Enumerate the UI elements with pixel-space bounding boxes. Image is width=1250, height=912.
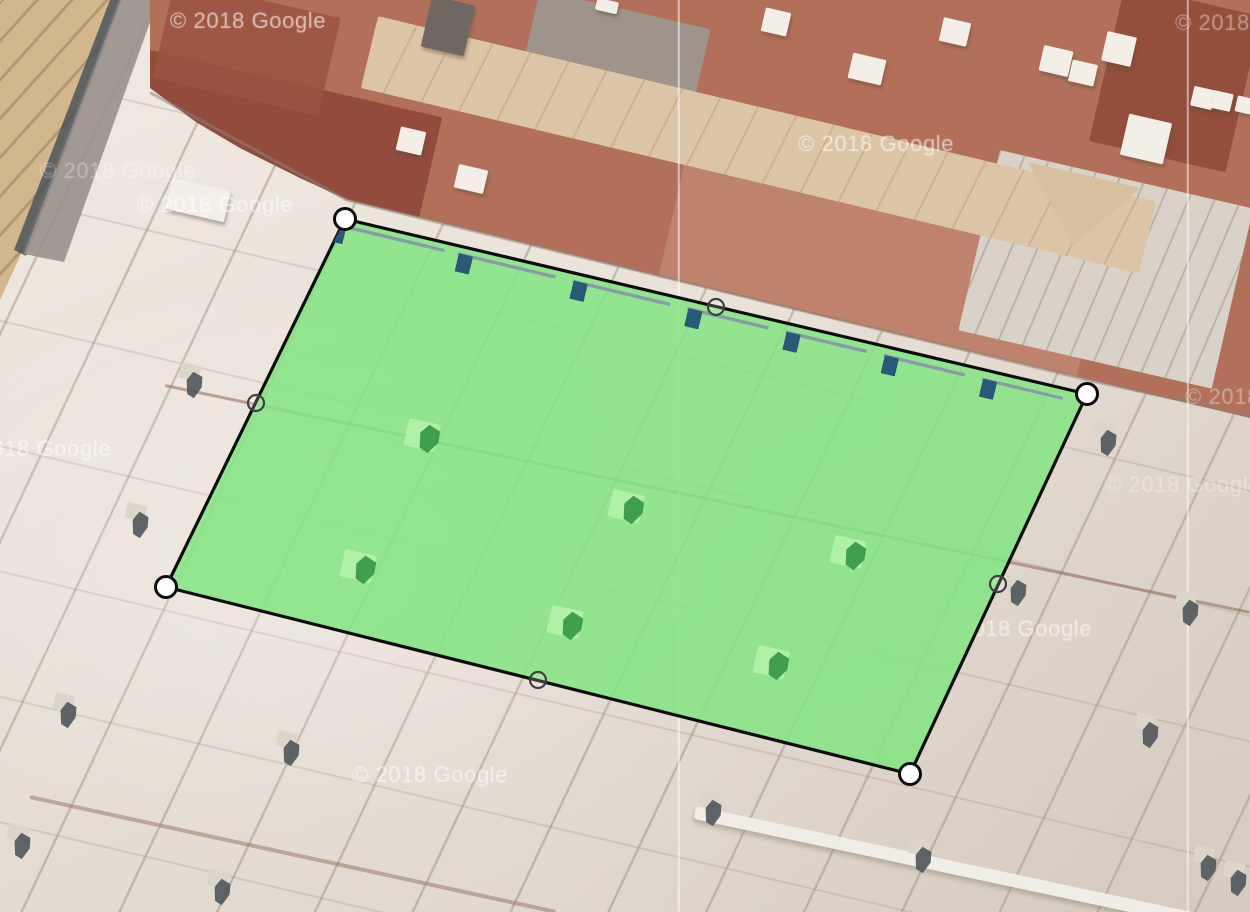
polygon-vertex-handle[interactable] [156, 577, 177, 598]
map-canvas[interactable]: © 2018 Google© 2018 Google© 2018 Google©… [0, 0, 1250, 912]
polygon-handles-layer [0, 0, 1250, 912]
polygon-midpoint-handle[interactable] [990, 576, 1006, 592]
polygon-vertex-handle[interactable] [335, 209, 356, 230]
polygon-midpoint-handle[interactable] [248, 395, 264, 411]
polygon-vertex-handle[interactable] [1077, 384, 1098, 405]
polygon-midpoint-handle[interactable] [530, 672, 546, 688]
polygon-midpoint-handle[interactable] [708, 299, 724, 315]
polygon-vertex-handle[interactable] [900, 764, 921, 785]
